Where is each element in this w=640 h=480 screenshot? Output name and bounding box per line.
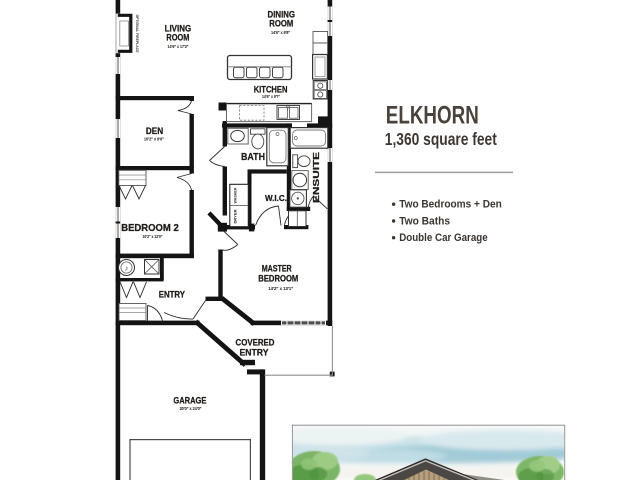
svg-text:DRYER: DRYER xyxy=(234,209,238,223)
svg-text:BATH: BATH xyxy=(241,152,265,163)
svg-text:ELKHORN: ELKHORN xyxy=(386,102,479,129)
svg-text:GARAGE: GARAGE xyxy=(173,396,206,407)
svg-text:Double Car Garage: Double Car Garage xyxy=(399,232,488,244)
svg-text:OPTIONAL FIREPLACE: OPTIONAL FIREPLACE xyxy=(135,15,139,54)
svg-text:BEDROOM 2: BEDROOM 2 xyxy=(121,223,179,234)
svg-text:ENSUITE: ENSUITE xyxy=(312,151,321,203)
svg-text:WASHER: WASHER xyxy=(234,187,238,203)
svg-text:14'6" x 9'8": 14'6" x 9'8" xyxy=(271,30,290,35)
svg-text:W.I.C.: W.I.C. xyxy=(265,193,287,203)
svg-text:10'2" x 9'6": 10'2" x 9'6" xyxy=(144,137,164,142)
svg-text:14'6" x 9'7": 14'6" x 9'7" xyxy=(262,94,280,99)
svg-text:ROOM: ROOM xyxy=(269,18,293,29)
svg-text:♪: ♪ xyxy=(125,264,129,273)
svg-text:Two Baths: Two Baths xyxy=(399,216,450,228)
svg-text:ROOM: ROOM xyxy=(166,32,189,43)
svg-text:ENTRY: ENTRY xyxy=(240,348,270,359)
svg-text:20'0" x 24'0": 20'0" x 24'0" xyxy=(180,406,202,411)
svg-text:1,360 square feet: 1,360 square feet xyxy=(385,129,497,149)
svg-text:DEN: DEN xyxy=(146,126,163,136)
svg-text:ENTRY: ENTRY xyxy=(159,289,186,300)
svg-text:14'2" x 13'1": 14'2" x 13'1" xyxy=(268,286,293,291)
svg-text:Two Bedrooms + Den: Two Bedrooms + Den xyxy=(399,199,502,211)
svg-text:BEDROOM: BEDROOM xyxy=(258,274,298,285)
svg-text:14'6" x 17'3": 14'6" x 17'3" xyxy=(168,44,189,49)
svg-text:10'2" x 12'0": 10'2" x 12'0" xyxy=(143,234,163,239)
